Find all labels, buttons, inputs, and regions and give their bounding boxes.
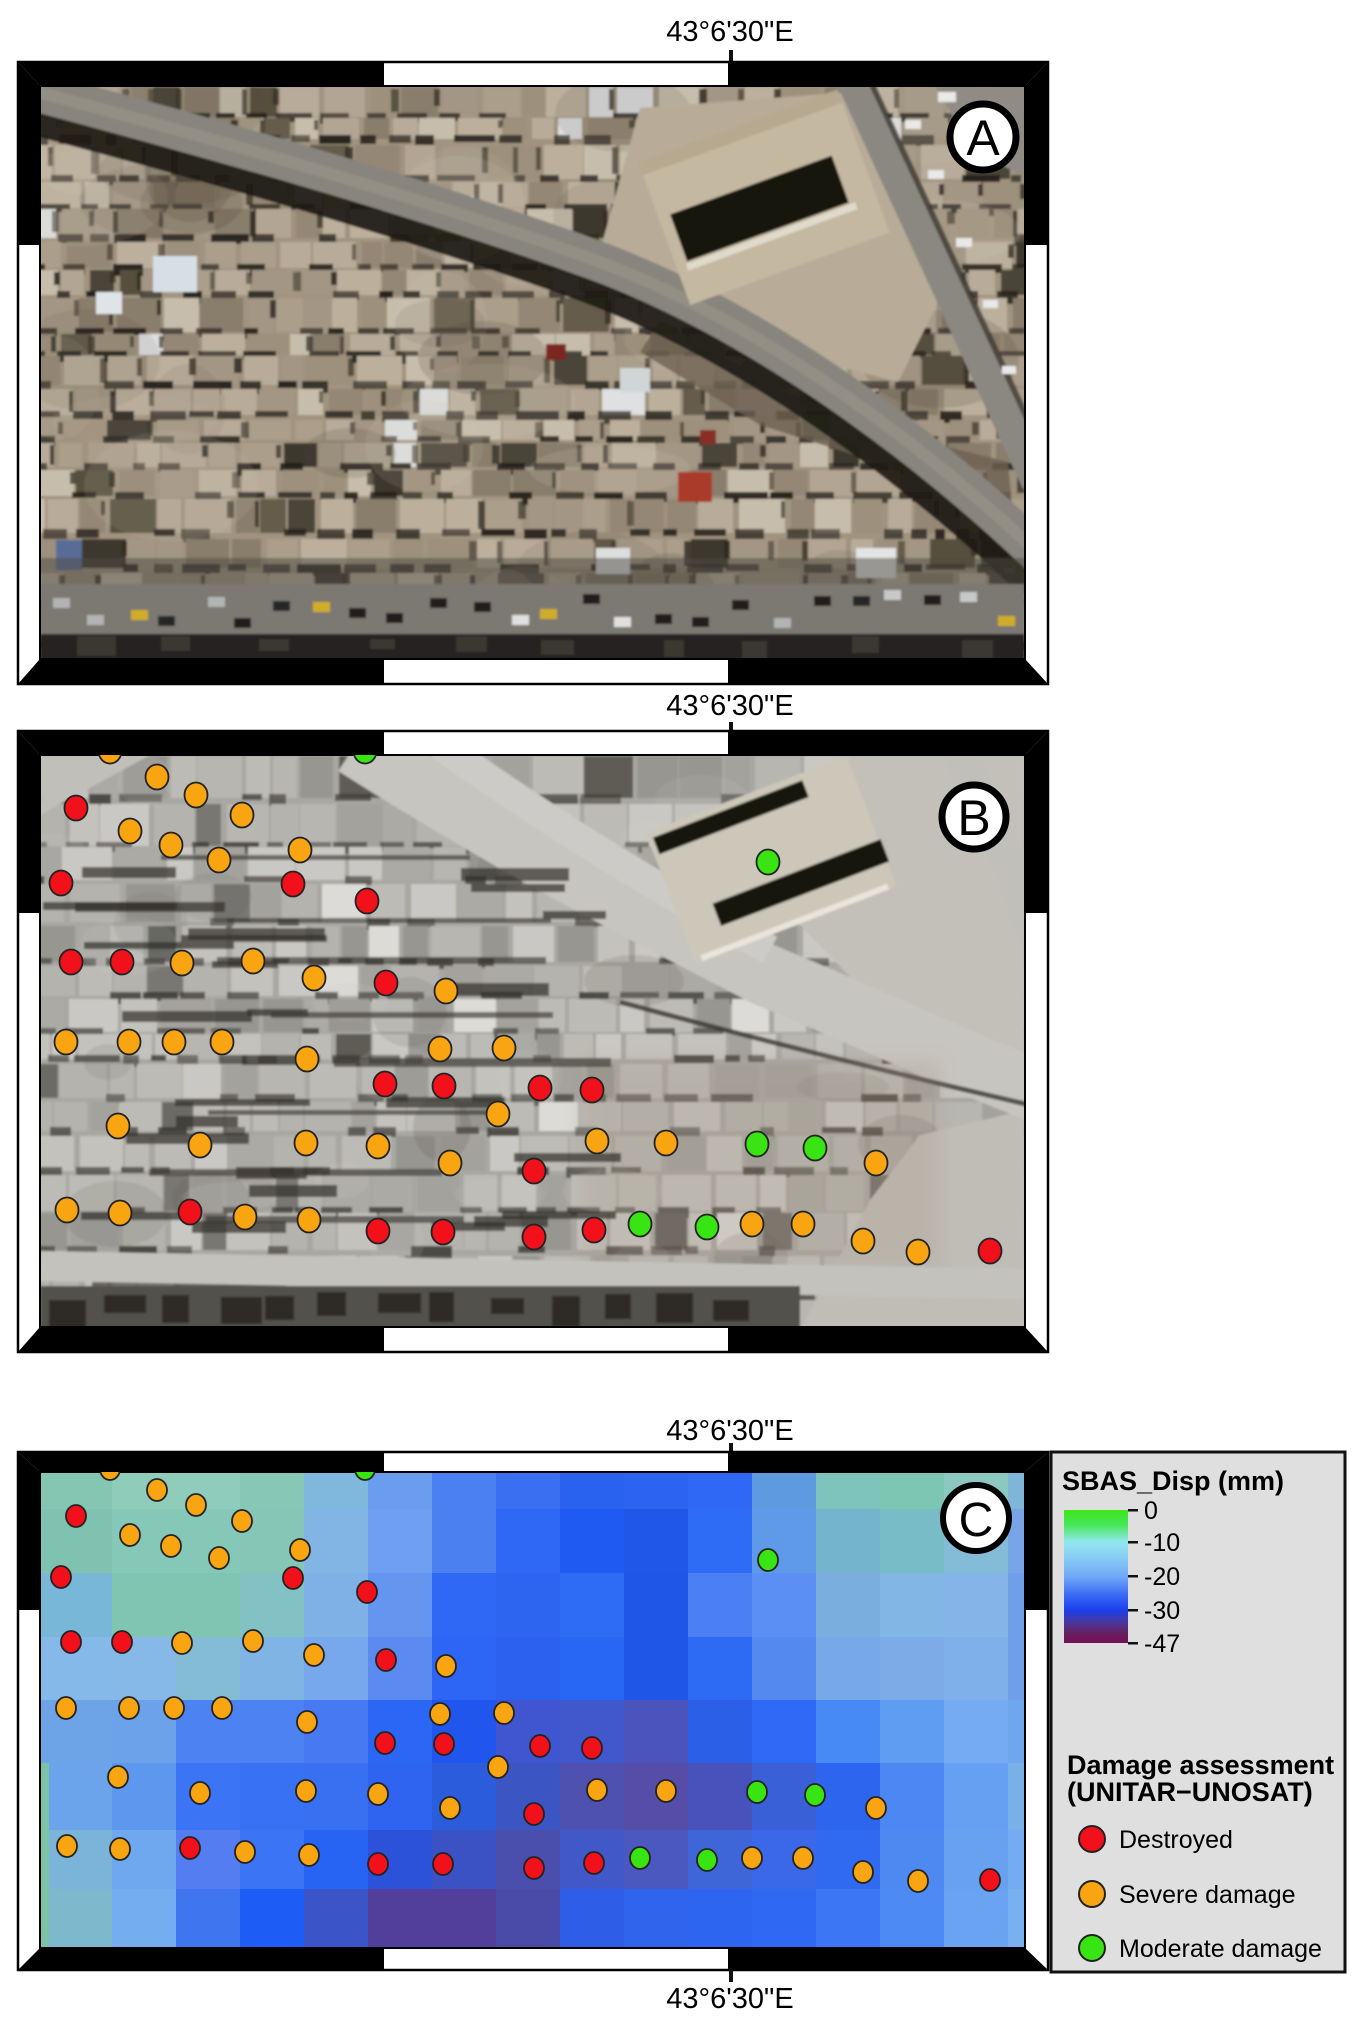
- svg-text:-30: -30: [1144, 1597, 1180, 1625]
- svg-text:0: 0: [1144, 1497, 1158, 1525]
- svg-text:Damage assessment: Damage assessment: [1067, 1750, 1334, 1780]
- svg-text:Moderate damage: Moderate damage: [1119, 1935, 1322, 1963]
- svg-text:Severe damage: Severe damage: [1119, 1881, 1296, 1909]
- svg-text:(UNITAR−UNOSAT): (UNITAR−UNOSAT): [1067, 1777, 1313, 1807]
- svg-text:B: B: [957, 790, 990, 846]
- svg-text:A: A: [966, 110, 1000, 166]
- svg-text:43°6'30"E: 43°6'30"E: [666, 16, 793, 48]
- svg-text:43°6'30"E: 43°6'30"E: [666, 1983, 793, 2015]
- svg-text:43°6'30"E: 43°6'30"E: [666, 1415, 793, 1447]
- svg-text:Destroyed: Destroyed: [1119, 1826, 1233, 1854]
- svg-text:SBAS_Disp (mm): SBAS_Disp (mm): [1062, 1466, 1284, 1496]
- svg-text:-20: -20: [1144, 1563, 1180, 1591]
- svg-text:C: C: [959, 1494, 994, 1547]
- svg-text:43°6'30"E: 43°6'30"E: [666, 690, 793, 722]
- svg-text:-47: -47: [1144, 1630, 1180, 1658]
- svg-text:-10: -10: [1144, 1529, 1180, 1557]
